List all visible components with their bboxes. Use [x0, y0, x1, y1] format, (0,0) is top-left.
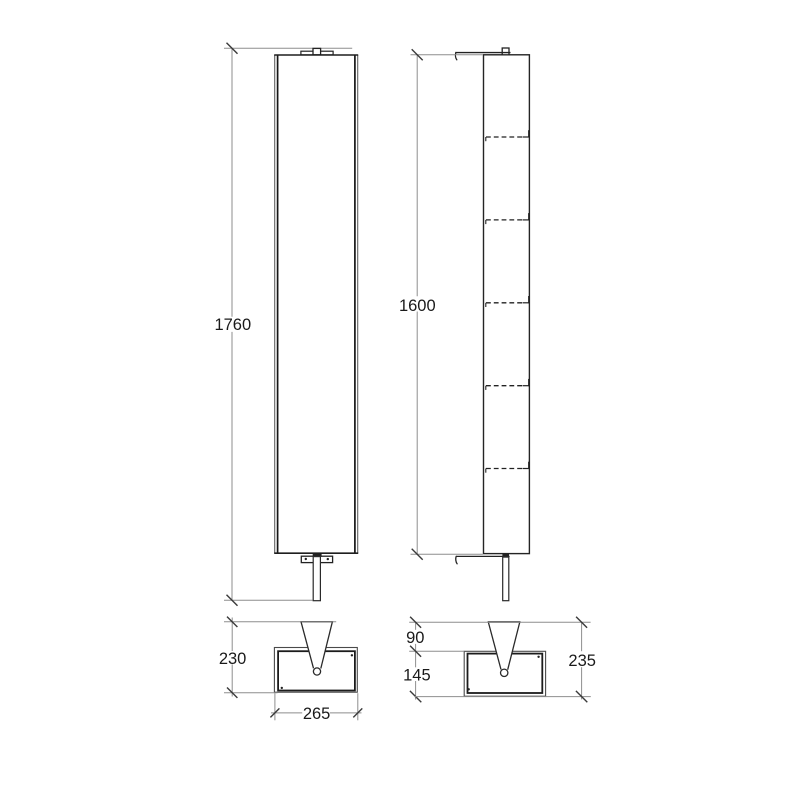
svg-text:145: 145	[403, 667, 431, 685]
svg-text:265: 265	[303, 705, 331, 723]
svg-text:235: 235	[568, 652, 596, 670]
svg-text:1600: 1600	[399, 297, 436, 315]
svg-text:90: 90	[406, 629, 424, 647]
svg-text:1760: 1760	[214, 316, 251, 334]
svg-text:230: 230	[219, 650, 247, 668]
